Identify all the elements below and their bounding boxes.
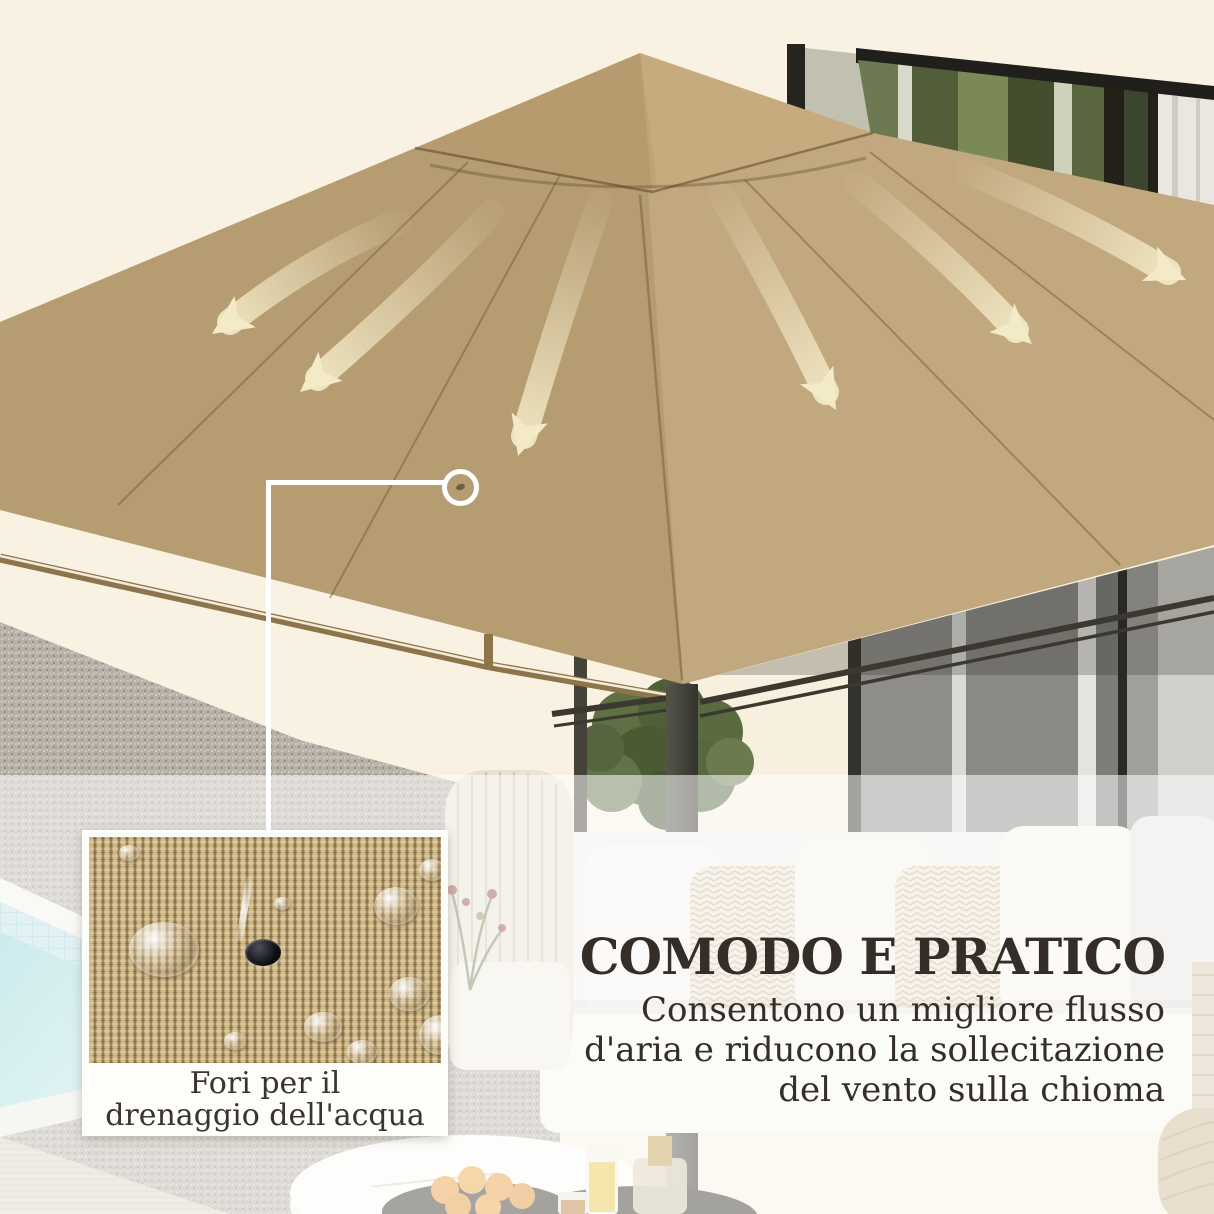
drainage-hole-marker-icon — [455, 483, 466, 492]
headline-body-line: del vento sulla chioma — [525, 1070, 1165, 1110]
water-drop — [274, 897, 290, 910]
callout-line-horizontal — [268, 480, 446, 485]
water-drop — [347, 1040, 377, 1063]
inset-caption-line: drenaggio dell'acqua — [82, 1100, 448, 1132]
headline-body: Consentono un migliore flusso d'aria e r… — [525, 990, 1165, 1110]
water-drop — [419, 1015, 441, 1055]
callout-circle — [442, 469, 479, 506]
water-drop — [119, 845, 139, 861]
product-feature-image: Fori per il drenaggio dell'acqua COMODO … — [0, 0, 1214, 1214]
drainage-hole — [245, 939, 281, 966]
inset-caption-line: Fori per il — [82, 1068, 448, 1100]
water-drop — [389, 977, 429, 1011]
inset-caption: Fori per il drenaggio dell'acqua — [82, 1068, 448, 1132]
water-drop — [304, 1012, 342, 1042]
rail-connector — [484, 634, 493, 668]
inset-detail-card: Fori per il drenaggio dell'acqua — [82, 830, 448, 1136]
headline-title: COMODO E PRATICO — [525, 931, 1165, 983]
water-drop — [374, 887, 418, 925]
water-drip-streak — [236, 877, 253, 941]
water-drop — [419, 859, 441, 881]
fabric-swatch — [89, 837, 441, 1063]
headline-body-line: d'aria e riducono la sollecitazione — [525, 1030, 1165, 1070]
water-drop — [129, 922, 199, 977]
callout-line-vertical — [266, 480, 271, 832]
headline-block: COMODO E PRATICO Consentono un migliore … — [525, 931, 1165, 1110]
headline-body-line: Consentono un migliore flusso — [525, 990, 1165, 1030]
water-drop — [224, 1032, 246, 1050]
